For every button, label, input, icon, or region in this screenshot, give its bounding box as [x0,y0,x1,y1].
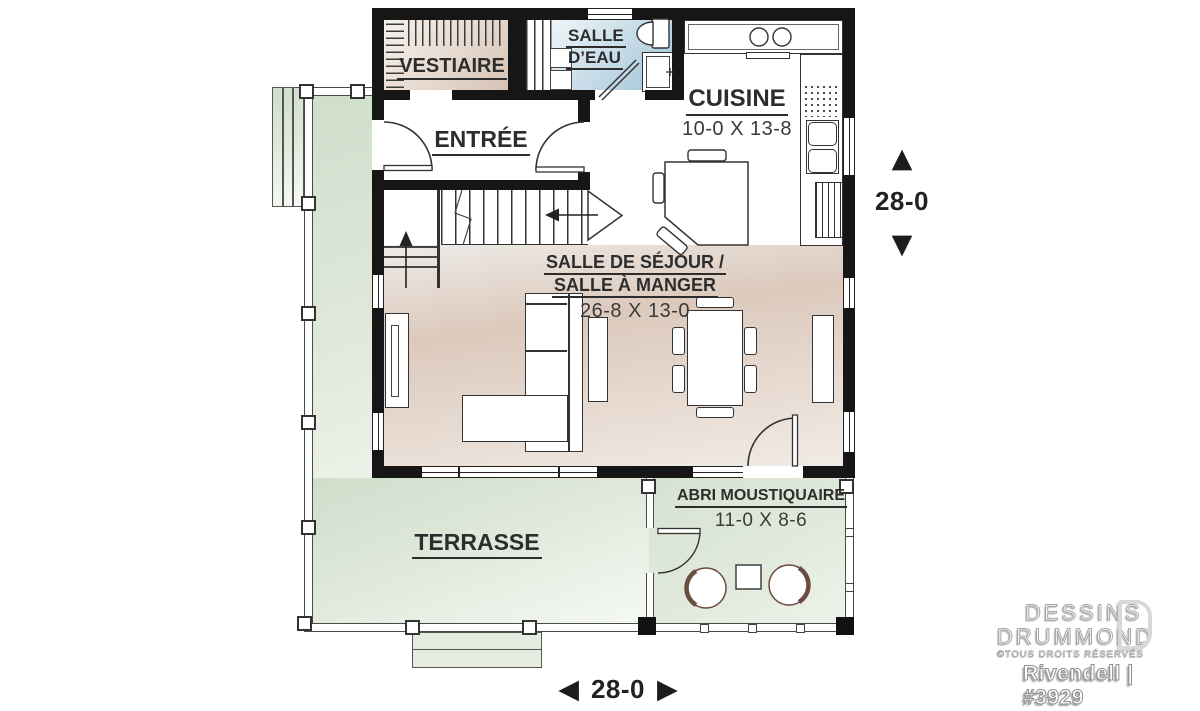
railing-post [297,616,312,631]
railing-post [301,415,316,430]
railing-post [350,84,365,99]
oven-front [746,52,790,59]
wall-left [372,308,384,413]
sofa-cushion-line [526,350,567,352]
wall-entry-stub [578,100,590,122]
dimension-arrow-left-icon: ◀ [558,676,579,703]
wall-right [843,308,855,412]
window-kitchen-right [843,118,855,175]
dimension-marker-vertical: ▲ 28-0 ▼ [862,145,942,258]
porch-screen-wall-left-lower [646,573,654,623]
vestiaire-label: VESTIAIRE [390,55,514,80]
dining-chair [744,327,757,355]
bathroom-name-line1: SALLE [566,26,626,48]
dimension-value-horizontal: 28-0 [591,674,645,705]
dining-table [687,310,743,406]
entry-name: ENTRÉE [432,127,529,156]
wall-left [372,8,384,120]
kitchen-name: CUISINE [686,86,787,116]
living-name-line2: SALLE À MANGER [552,275,718,298]
stair-stringer [437,190,440,288]
wall-bath-south [452,90,595,100]
floor-plan: VESTIAIRE SALLE D’EAU CUISINE 10-0 X 13-… [0,0,1200,711]
dining-chair [672,365,685,393]
wall-right [843,8,855,118]
buffet [812,315,834,403]
lower-stair-tread [379,266,437,268]
terrace-name: TERRASSE [412,530,541,559]
bathroom-name-line2: D’EAU [566,48,623,70]
railing-post [301,196,316,211]
kitchen-label: CUISINE 10-0 X 13-8 [662,86,812,140]
dimension-arrow-right-icon: ▶ [657,676,678,703]
wall-vestiaire-closet [508,8,526,100]
window-dining-right [843,278,855,308]
wall-top [632,8,855,20]
terrace-side-steps [272,87,304,207]
window-living-south [422,466,597,478]
screened-porch-name: ABRI MOUSTIQUAIRE [675,487,847,508]
dining-chair [696,407,734,418]
door-opening-entry [372,120,384,170]
railing-bottom [304,623,649,632]
window-bathroom [588,8,632,20]
dimension-arrow-down-icon: ▼ [892,231,913,258]
window-porch-side [693,466,743,478]
railing-post [522,620,537,635]
wall-bottom [803,466,855,478]
wall-top [372,8,588,20]
terrace-side-step-line [292,88,294,206]
tv-unit-slot [391,325,399,397]
lower-stair-tread [379,256,437,258]
wall-right [843,175,855,278]
wall-vestiaire-south [384,90,410,100]
screen-post [796,624,805,633]
terrace-label: TERRASSE [397,530,557,559]
coffee-table [462,395,568,442]
wall-left [372,170,384,275]
window-dining-right [843,412,855,452]
railing-post [405,620,420,635]
window-mullion [558,466,560,478]
lower-stair-tread [379,246,437,248]
porch-post [641,479,656,494]
kitchen-dimensions: 10-0 X 13-8 [662,118,812,140]
railing-post [301,306,316,321]
window-living-left [372,413,384,450]
living-dimensions: 26-8 X 13-0 [525,300,745,322]
terrace-side-step-line [282,88,284,206]
porch-corner-post [836,617,854,635]
railing-post [301,520,316,535]
living-dining-label: SALLE DE SÉJOUR / SALLE À MANGER 26-8 X … [525,252,745,323]
side-cabinet [588,317,608,402]
bathroom-label: SALLE D’EAU [566,26,650,70]
window-living-left [372,275,384,308]
screen-post [748,624,757,633]
kitchen-counter-inner-line [688,24,839,50]
wall-left [372,450,384,466]
linen-cabinet [550,70,572,90]
wall-bottom [597,466,693,478]
door-opening-porch [743,466,803,478]
terrace-step [412,649,542,668]
dining-chair [672,327,685,355]
drummond-d-logo-icon [1118,600,1152,650]
window-mullion [458,466,460,478]
vestiaire-name: VESTIAIRE [397,55,507,80]
sink-basin [808,122,837,146]
dimension-marker-horizontal: ◀ 28-0 ▶ [518,674,718,705]
screen-post [845,583,854,592]
screen-post [700,624,709,633]
screened-porch-label: ABRI MOUSTIQUAIRE 11-0 X 8-6 [661,487,861,531]
screened-porch-dimensions: 11-0 X 8-6 [661,510,861,531]
sink-basin [808,149,837,173]
dining-chair [744,365,757,393]
wall-stair-north [384,180,588,190]
railing-post [299,84,314,99]
closet-rod-hatch [408,16,504,46]
dimension-value-vertical: 28-0 [875,186,929,217]
entry-label: ENTRÉE [411,127,551,156]
porch-corner-post [638,617,656,635]
branding-block: DESSINS DRUMMOND ©TOUS DROITS RÉSERVÉS R… [985,598,1195,698]
railing-left [304,87,313,632]
closet-shelving [526,18,553,90]
wall-bottom [372,466,422,478]
stair-treads [441,190,588,245]
refrigerator [815,182,843,238]
living-name-line1: SALLE DE SÉJOUR / [544,252,726,275]
dimension-arrow-up-icon: ▲ [892,145,913,172]
plan-name-number: Rivendell | #3929 [1023,662,1195,710]
brand-rights: ©TOUS DROITS RÉSERVÉS [997,649,1144,660]
